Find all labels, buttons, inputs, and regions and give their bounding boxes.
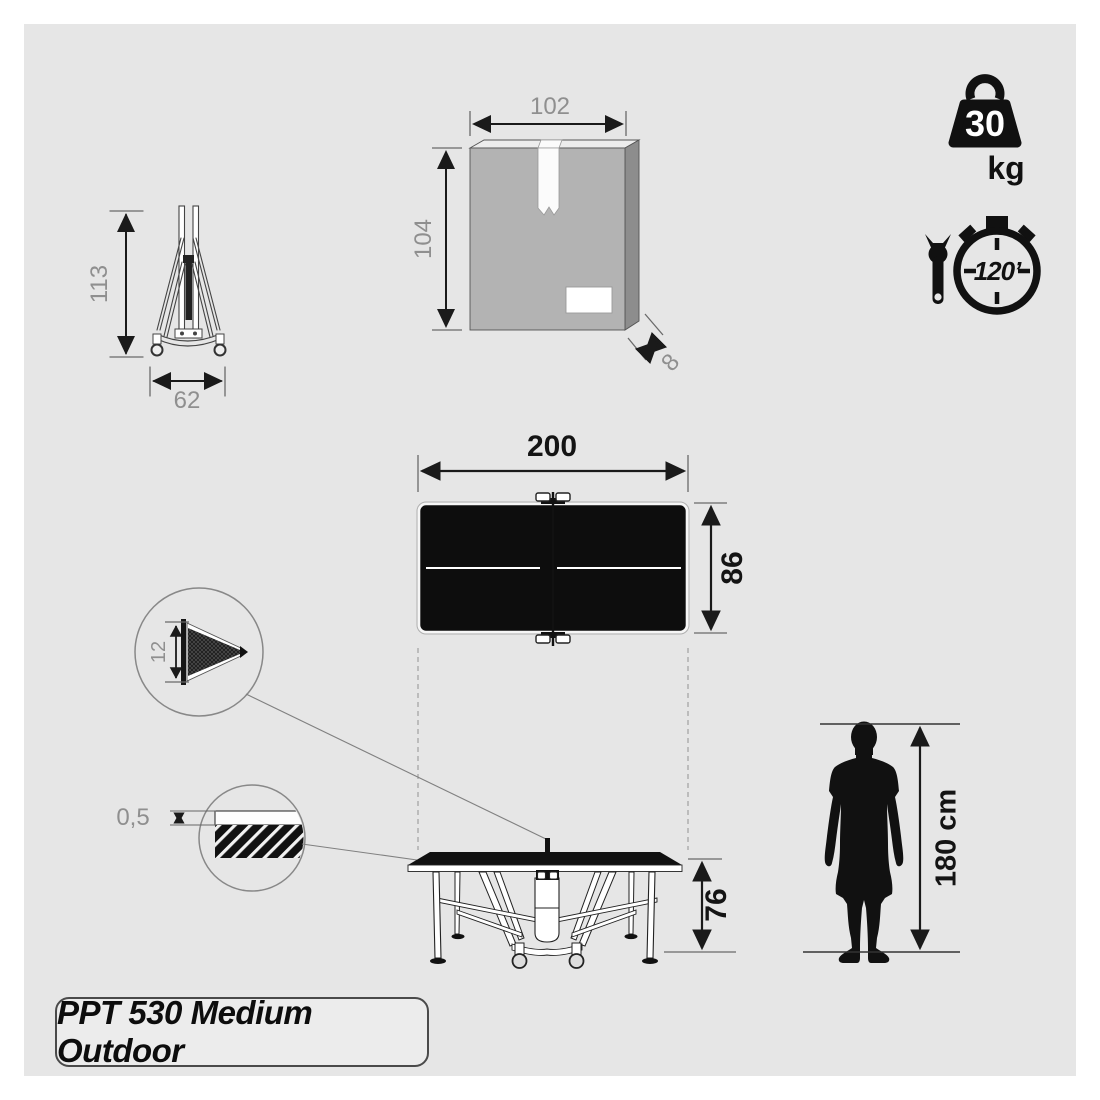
thickness-detail-circle (170, 785, 417, 891)
dim-box-width-label: 102 (530, 95, 570, 119)
box-drawing (432, 111, 663, 360)
dim-person-height-label: 180 cm (933, 789, 962, 887)
dim-table-length-label: 200 (527, 432, 577, 462)
product-name-badge: PPT 530 Medium Outdoor (55, 997, 429, 1067)
dim-top-thickness-label: 0,5 (116, 806, 149, 830)
folded-table-drawing (110, 206, 226, 396)
dim-table-height-label: 76 (702, 888, 732, 921)
dim-net-height-label: 12 (149, 641, 169, 663)
wrench-icon (925, 234, 951, 304)
table-side-view (408, 838, 736, 968)
weight-unit-label: kg (987, 152, 1024, 184)
assembly-time-label: 120’ (974, 258, 1021, 284)
weight-value-label: 30 (965, 106, 1005, 142)
dim-folded-width-label: 62 (174, 389, 201, 413)
dim-table-width-label: 86 (718, 551, 748, 584)
spec-sheet: 113 62 102 104 8 30 kg 120’ 200 86 12 0,… (0, 0, 1100, 1100)
dim-box-height-label: 104 (412, 219, 436, 259)
product-name-label: PPT 530 Medium Outdoor (57, 994, 427, 1070)
diagram-drawings (0, 0, 1100, 1100)
table-top-view (417, 455, 727, 850)
dim-folded-height-label: 113 (88, 265, 112, 303)
